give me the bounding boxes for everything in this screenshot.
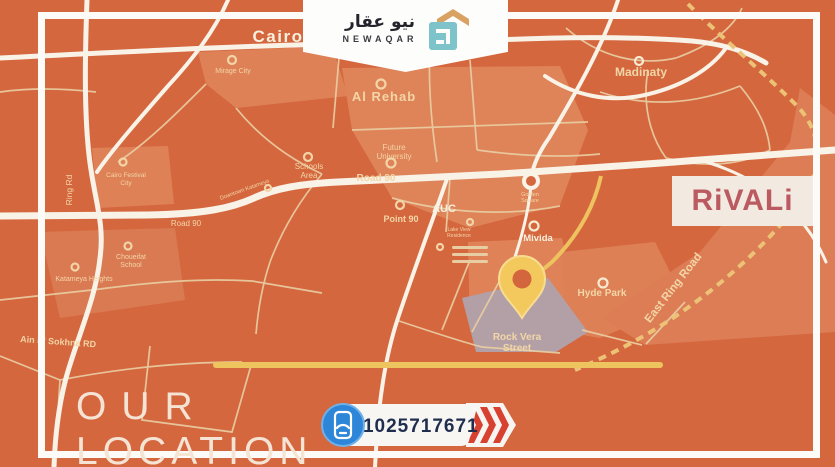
label-lake-view: Residence xyxy=(447,233,471,239)
label-rock-vera: Street xyxy=(503,343,532,354)
label-future-university: Future xyxy=(382,143,406,152)
label-al-rehab: Al Rehab xyxy=(352,89,416,104)
label-future-university: University xyxy=(376,152,411,161)
label-hyde-park: Hyde Park xyxy=(578,288,627,299)
caption-line-our: OUR xyxy=(76,384,312,429)
roundabout xyxy=(524,174,538,188)
label-cairo: Cairo xyxy=(253,27,304,46)
building-rows xyxy=(452,246,488,263)
phone-number: 01025717671 xyxy=(351,416,478,437)
label-point-90: Point 90 xyxy=(383,214,418,224)
location-map-poster: Cairo Madinaty Al Rehab Mirage City Futu… xyxy=(0,0,835,467)
our-location-caption: OUR LOCATION xyxy=(76,384,312,467)
label-cairo-festival-city: Cairo Festival xyxy=(106,172,146,179)
label-mirage-city: Mirage City xyxy=(215,68,251,75)
label-katameya-heights: Katameya Heights xyxy=(55,276,113,283)
label-road-90-center: Road 90 xyxy=(357,173,396,184)
label-ring-rd: Ring Rd xyxy=(64,174,74,205)
label-auc: AUC xyxy=(432,203,456,215)
phone-cta-button[interactable]: 01025717671 xyxy=(316,400,521,450)
label-choueifat-school: Choueifat xyxy=(116,254,146,261)
label-road-90-west: Road 90 xyxy=(171,219,202,228)
label-schools-area: Area xyxy=(301,171,318,180)
newaqar-arabic-name: نيو عقار xyxy=(345,14,415,32)
newaqar-logo-icon xyxy=(427,6,469,52)
rivali-project-name: RiVALi xyxy=(691,184,793,218)
label-rock-vera: Rock Vera xyxy=(493,332,542,343)
label-madinaty: Madinaty xyxy=(615,65,667,79)
label-schools-area: Schools xyxy=(295,162,323,171)
newaqar-logo-text: نيو عقار NEWAQAR xyxy=(343,14,418,44)
label-cairo-festival-city: City xyxy=(120,180,132,187)
rivali-project-badge: RiVALi xyxy=(672,176,813,226)
newaqar-latin-name: NEWAQAR xyxy=(343,35,418,44)
label-choueifat-school: School xyxy=(120,262,142,269)
label-golden-square: Square xyxy=(521,198,539,204)
label-mivida: Mivida xyxy=(523,233,553,244)
caption-line-location: LOCATION xyxy=(76,429,312,467)
